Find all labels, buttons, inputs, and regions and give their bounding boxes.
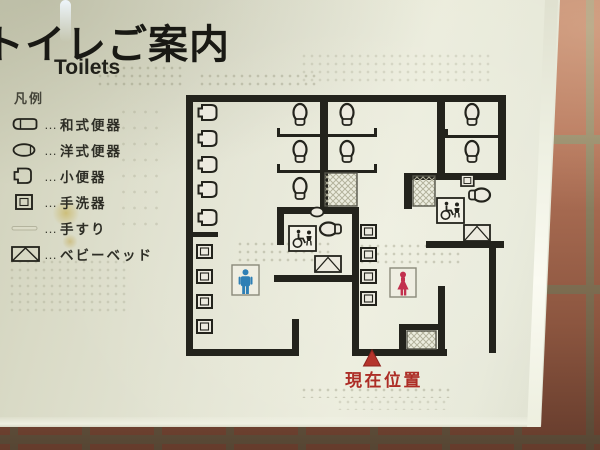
floor-plan [183,88,507,390]
legend-label: 和式便器 [60,114,122,134]
baby-bed-map-icon [315,256,341,272]
wheelchair-baby-sign-icon [437,198,464,223]
legend-label: 小便器 [60,166,107,186]
wash-basin-icon [10,193,44,211]
baby-bed-icon [10,244,44,264]
legend-separator: … [44,221,57,236]
legend-separator: … [44,169,57,184]
handrail-icon [10,219,44,237]
legend-separator: … [44,247,57,262]
legend-separator: … [44,195,57,210]
accessible-toilet-icon [469,189,490,202]
legend-header: 凡例 [14,88,180,107]
wheelchair-baby-sign-icon [289,226,316,251]
sign-bottom-edge [0,417,545,427]
legend-item-wash-basin: … 手洗器 [10,189,180,215]
braille-dots [300,52,490,86]
legend-label: 手洗器 [60,192,107,212]
legend-item-handrail: … 手すり [10,215,180,241]
current-location-label: 現在位置 [345,366,423,391]
toilet-guide-sign: トイレご案内 Toilets 凡例 … 和式便器 … 洋式便器 [0,0,560,427]
accessible-toilet-icon [320,223,341,236]
squat-toilet-icon [10,115,44,133]
legend-item-urinal: … 小便器 [10,163,180,189]
legend-item-western-toilet: … 洋式便器 [10,137,180,163]
female-figure-icon [390,268,416,297]
legend-separator: … [44,143,57,158]
mens-wash-basins [197,245,212,333]
mens-urinals [199,105,217,225]
western-toilet-icon [10,141,44,159]
accessible-room-center [289,208,341,273]
legend-separator: … [44,117,57,132]
legend-item-squat-toilet: … 和式便器 [10,111,180,137]
braille-dots [336,398,446,410]
legend-label: ベビーベッド [60,244,153,264]
map-walls [186,95,506,356]
male-figure-icon [232,265,259,295]
round-basin-icon [311,208,324,217]
mens-stall-toilets [294,104,307,199]
legend: 凡例 … 和式便器 … 洋式便器 [10,88,180,267]
accessible-room-right [437,175,490,241]
wash-basin-map-icon [461,175,474,186]
baby-bed-map-icon [464,225,490,241]
womens-stall-toilets [341,104,479,162]
sign-subtitle: Toilets [54,56,120,80]
urinal-icon [10,167,44,185]
legend-item-baby-bed: … ベビーベッド [10,241,180,267]
womens-wash-basins [361,225,376,305]
legend-label: 手すり [60,218,107,238]
legend-label: 洋式便器 [60,140,122,160]
